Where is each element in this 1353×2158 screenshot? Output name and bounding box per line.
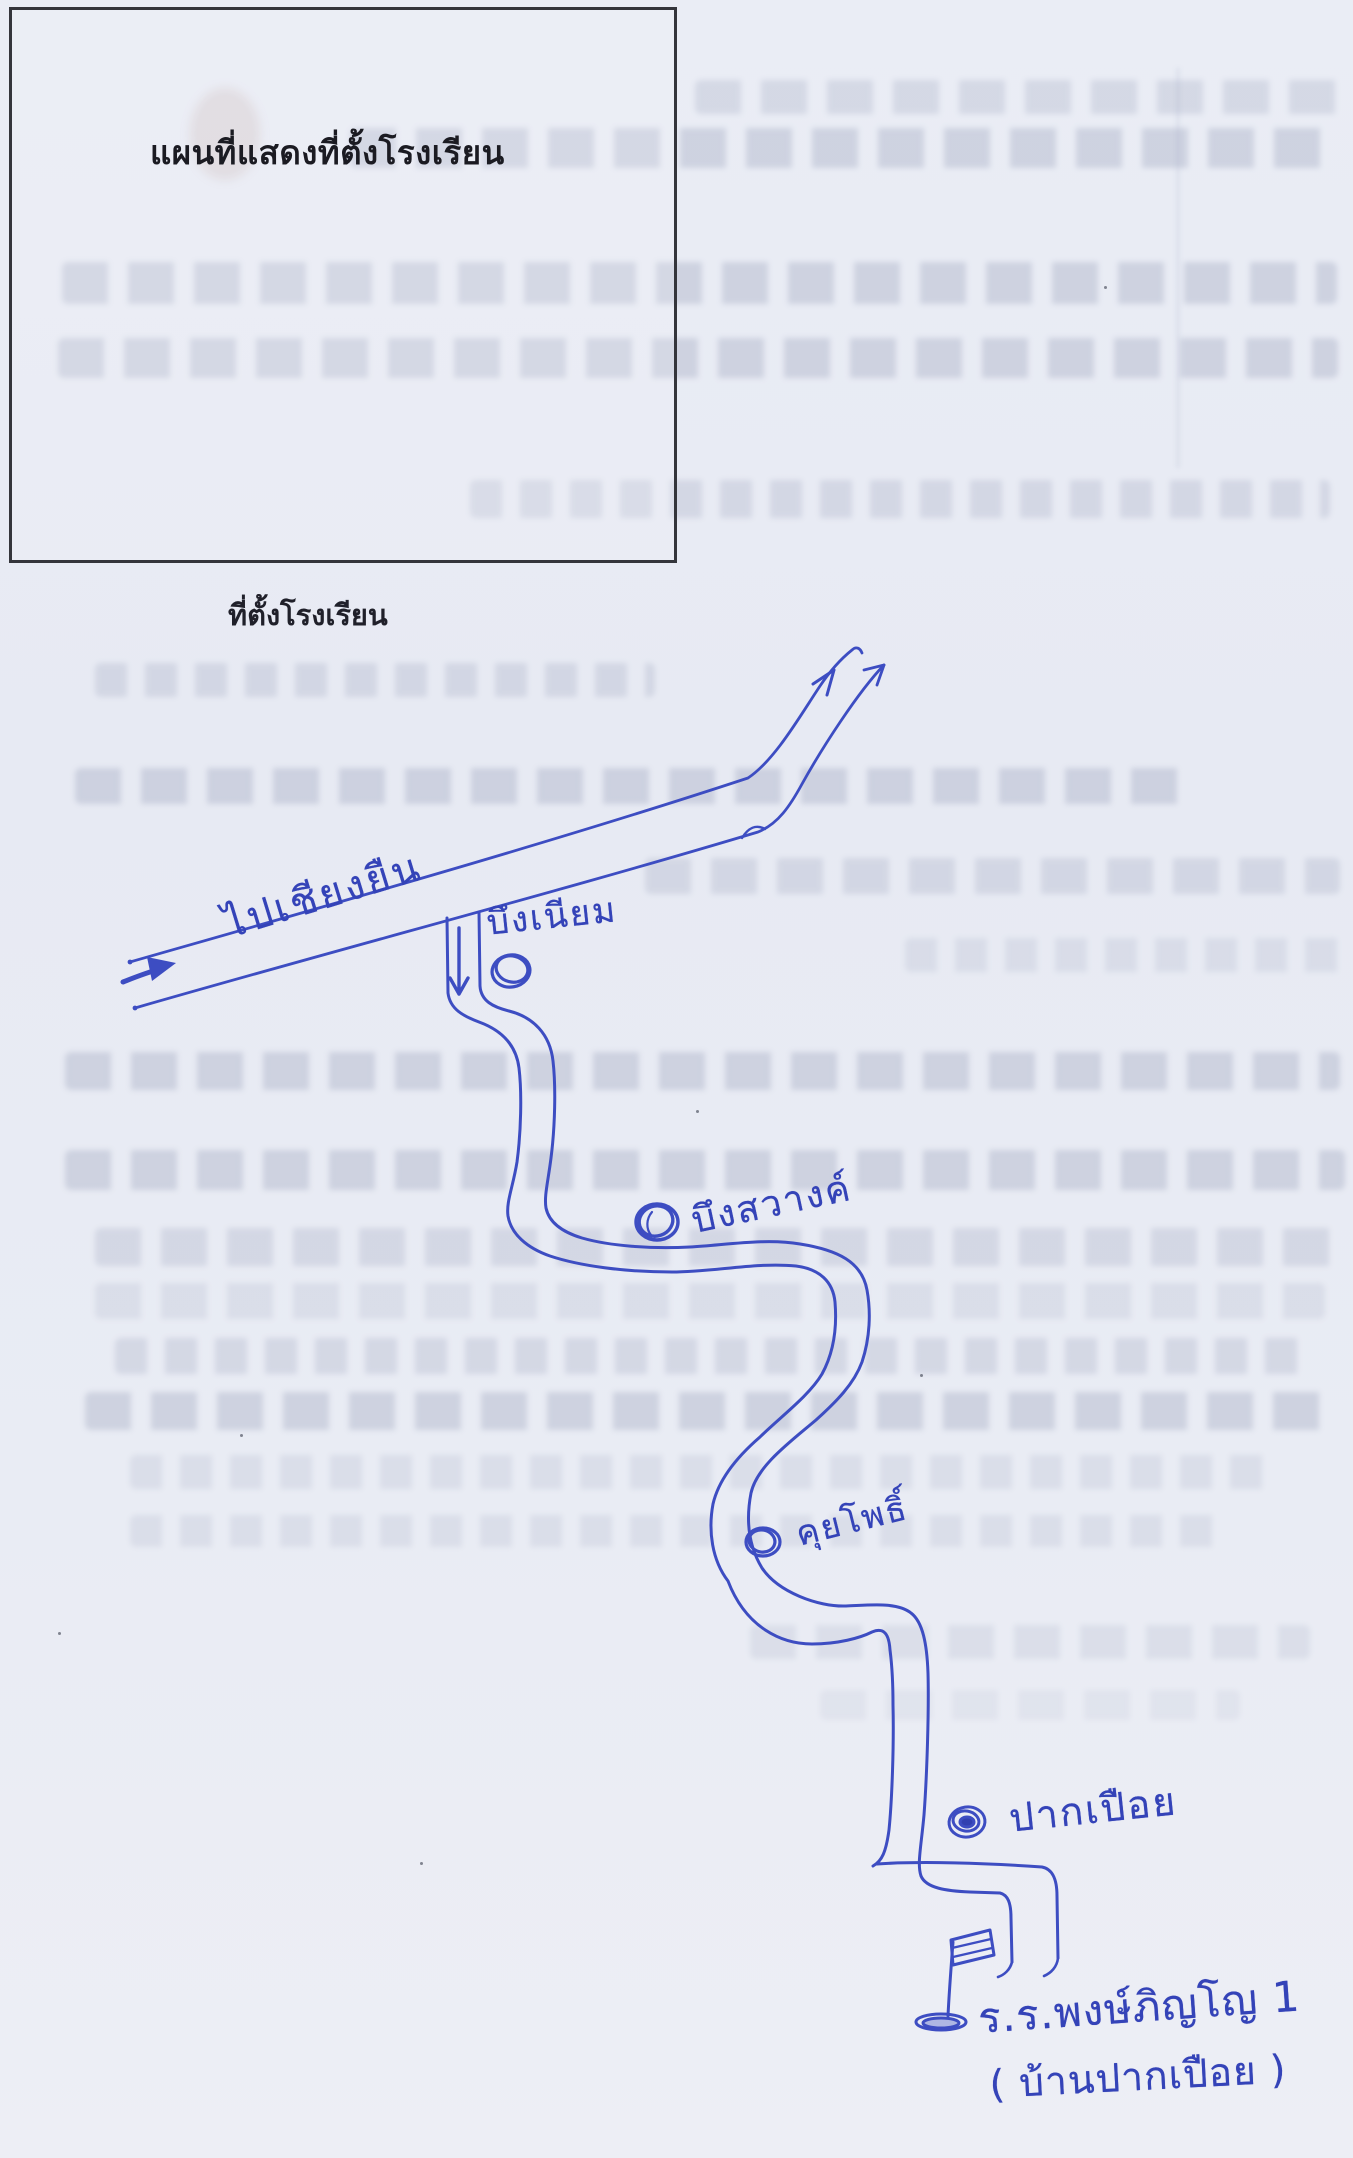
flag-stripes: [952, 1939, 992, 1957]
scan-speck: [696, 1110, 699, 1113]
scan-speck: [1104, 286, 1107, 289]
scan-speck: [58, 1632, 61, 1635]
village-circle-bueng-niam: [490, 952, 533, 990]
branch-entry-arrow-icon: [450, 928, 468, 994]
scan-speck: [420, 1862, 423, 1865]
flag-base-inner: [923, 2018, 959, 2028]
scanned-document-page: แผนที่แสดงที่ตั้งโรงเรียน ที่ตั้งโรงเรีย…: [0, 0, 1353, 2158]
branch-road-end-foot: [998, 1958, 1058, 1977]
scan-speck: [920, 1374, 923, 1377]
branch-road-west-edge: [447, 918, 893, 1866]
pen-dot: [128, 960, 133, 965]
village-circle-bueng-sawang: [635, 1201, 678, 1240]
scan-speck: [240, 1434, 243, 1437]
pen-dot: [133, 1006, 138, 1011]
branch-road-east-edge: [479, 912, 1012, 1962]
map-caption: ที่ตั้งโรงเรียน: [228, 592, 388, 638]
village-circle-pak-pueay: [947, 1805, 987, 1840]
map-title: แผนที่แสดงที่ตั้งโรงเรียน: [150, 126, 505, 179]
